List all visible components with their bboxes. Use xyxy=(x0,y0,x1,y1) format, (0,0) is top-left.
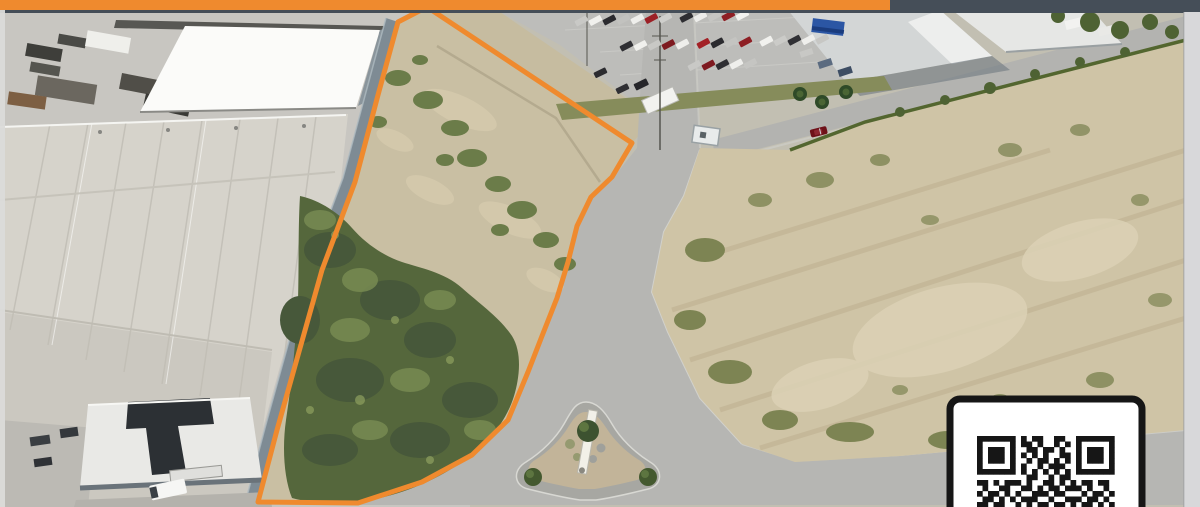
guard-kiosk xyxy=(692,125,720,145)
aerial-photo xyxy=(0,0,1200,507)
qr-code xyxy=(950,399,1142,507)
photo-edge-right xyxy=(1183,12,1200,507)
photo-edge-left xyxy=(0,10,5,507)
top-bar-orange xyxy=(0,0,890,10)
